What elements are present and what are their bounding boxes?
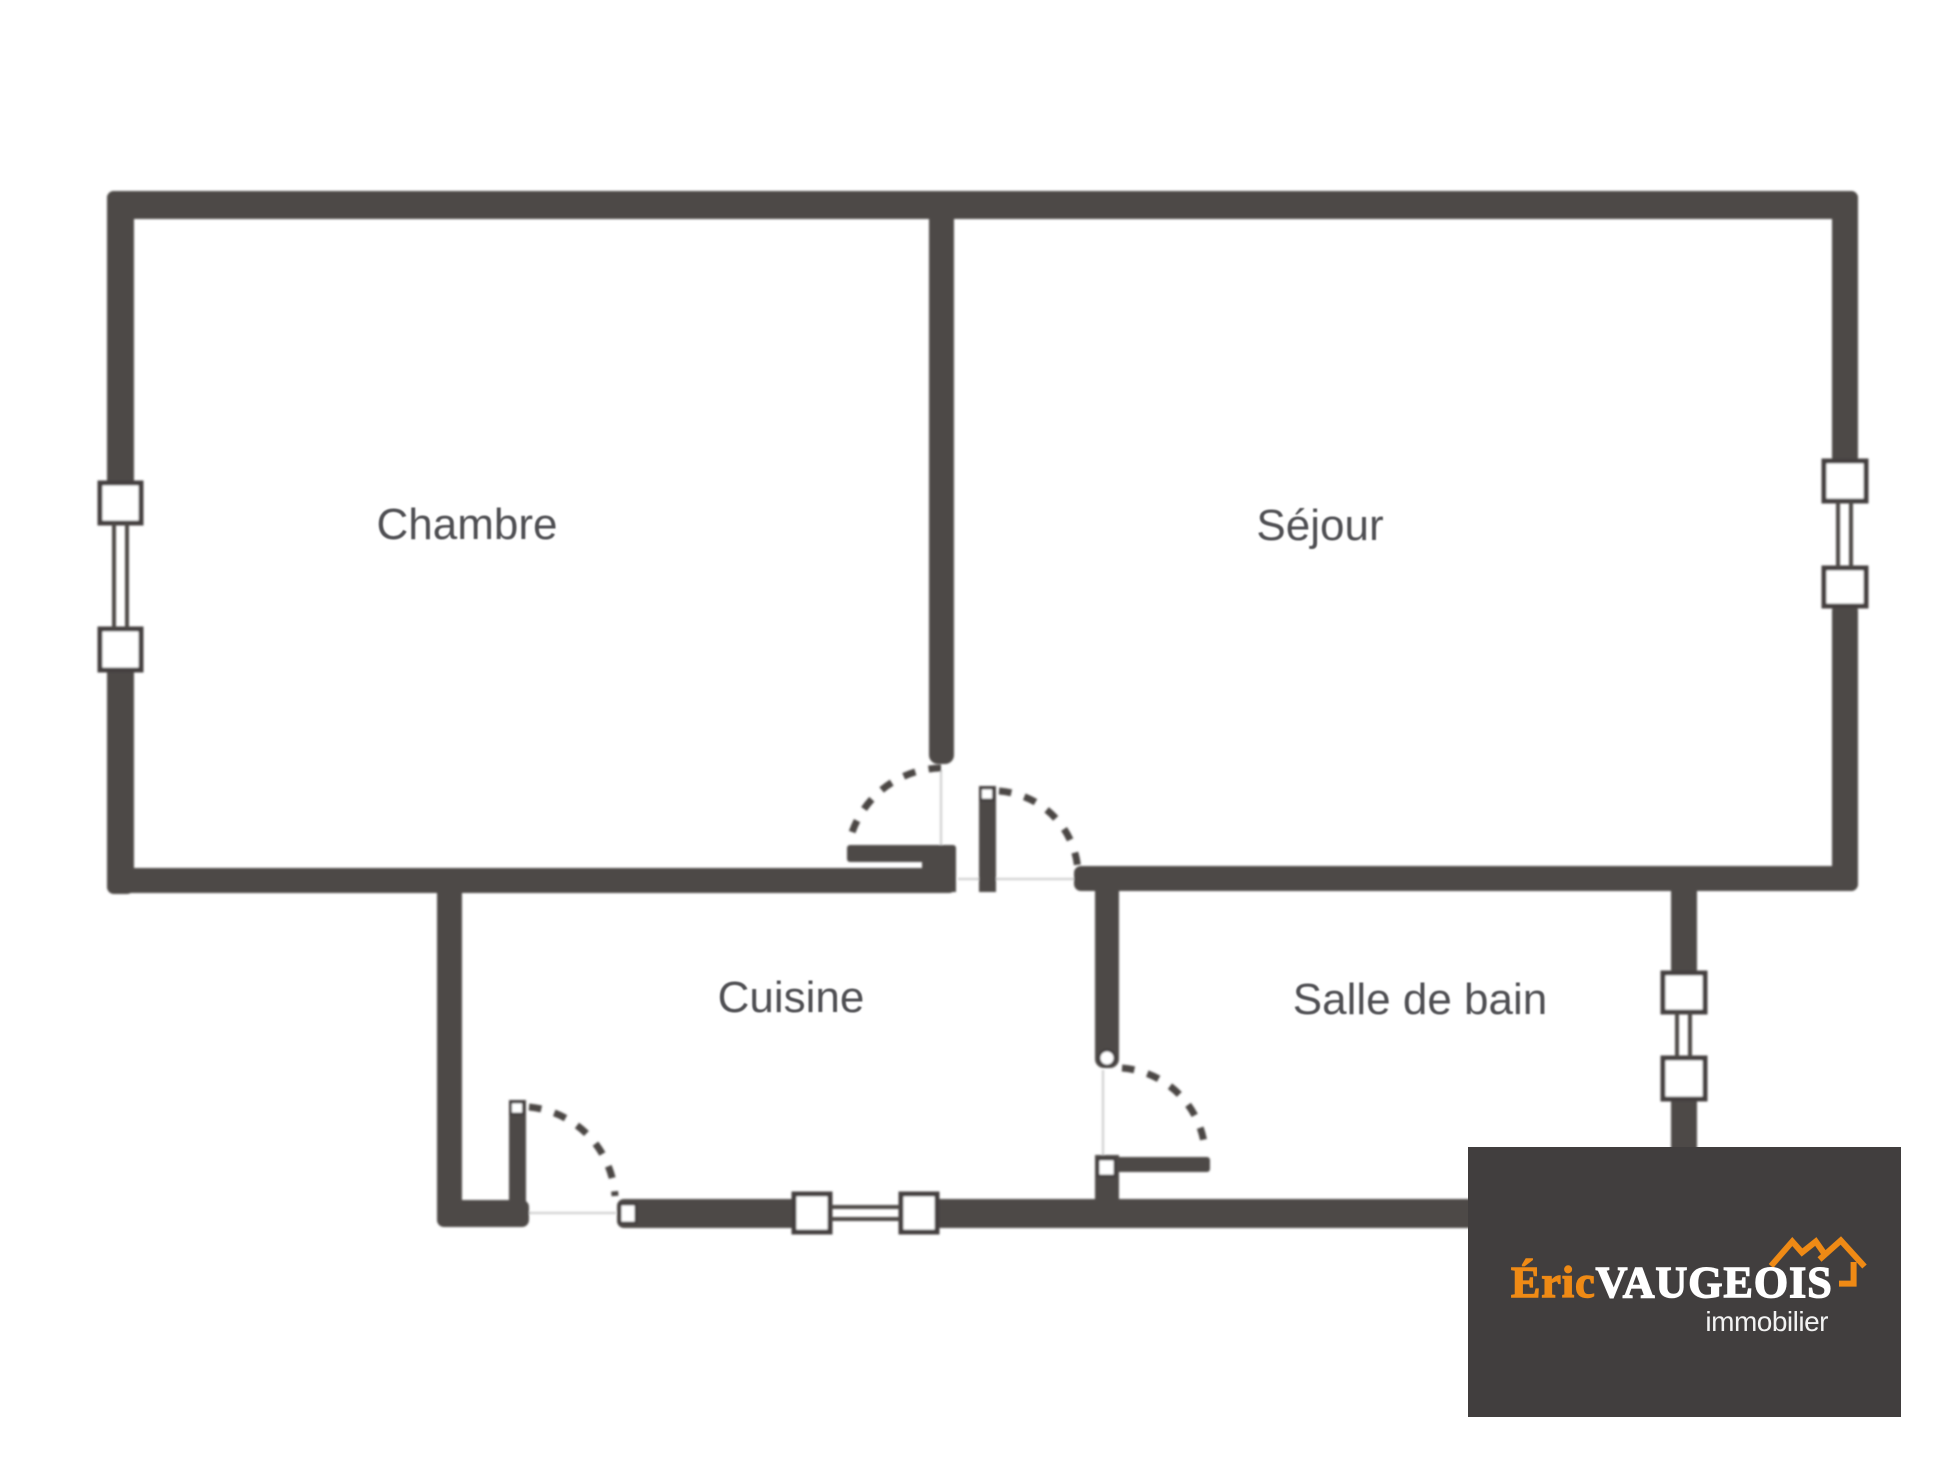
svg-text:Chambre: Chambre <box>377 500 558 549</box>
svg-text:Salle de bain: Salle de bain <box>1293 975 1547 1024</box>
svg-text:ÉricVAUGEOIS: ÉricVAUGEOIS <box>1511 1258 1833 1307</box>
svg-text:immobilier: immobilier <box>1705 1306 1828 1337</box>
svg-text:Cuisine: Cuisine <box>718 973 865 1022</box>
svg-text:Séjour: Séjour <box>1256 501 1383 550</box>
